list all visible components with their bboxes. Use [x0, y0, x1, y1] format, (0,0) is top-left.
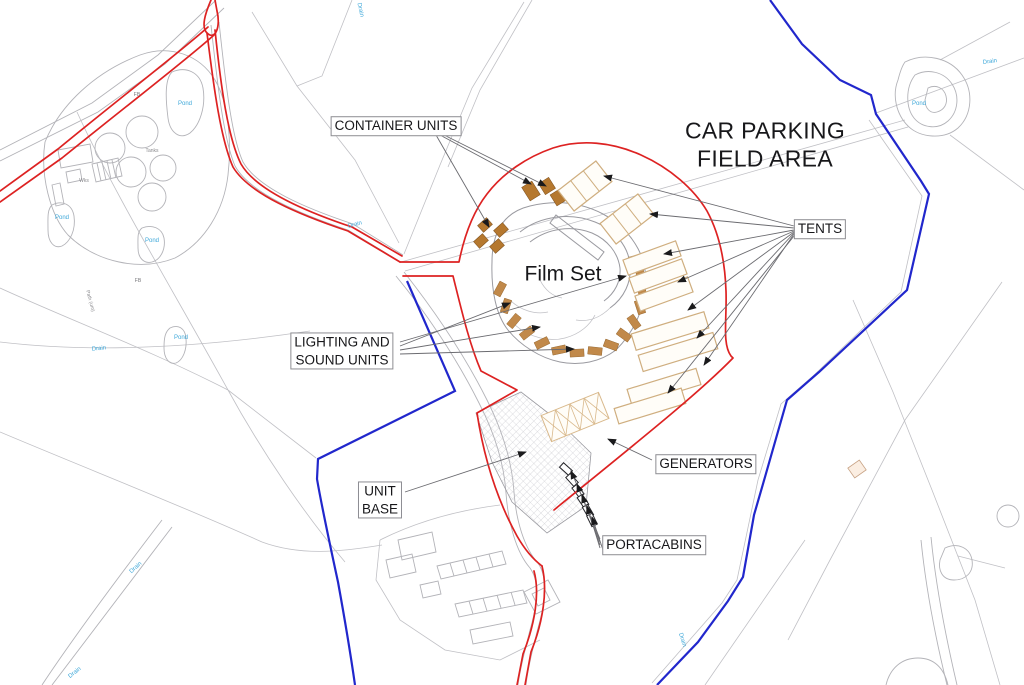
container-units-label: CONTAINER UNITS	[331, 116, 462, 136]
site-plan-canvas: CONTAINER UNITS CAR PARKING FIELD AREA T…	[0, 0, 1024, 685]
container-units-label-text: CONTAINER UNITS	[335, 118, 458, 133]
unit-base-label-line2: BASE	[362, 500, 398, 518]
leader-lines	[400, 135, 794, 553]
portacabins-label: PORTACABINS	[602, 535, 706, 555]
map-text: Pond	[55, 215, 69, 221]
pond-top-right	[895, 57, 970, 136]
map-text: FB	[134, 92, 140, 98]
map-text: Pond	[912, 101, 926, 107]
map-text: Pond	[178, 101, 192, 107]
generators-marker	[541, 392, 609, 441]
film-set-label: Film Set	[521, 260, 604, 287]
map-text: Pond	[174, 335, 188, 341]
car-parking-label: CAR PARKING FIELD AREA	[682, 117, 848, 172]
car-parking-label-line2: FIELD AREA	[685, 145, 845, 173]
lighting-sound-label: LIGHTING AND SOUND UNITS	[290, 332, 393, 369]
generators-leader	[608, 439, 652, 460]
farm-buildings	[376, 505, 560, 660]
unit-base-label: UNIT BASE	[358, 481, 402, 518]
unit-base-label-line1: UNIT	[362, 482, 398, 500]
film-set-label-text: Film Set	[524, 262, 601, 285]
map-text: Wks	[79, 178, 89, 184]
tents-label-text: TENTS	[798, 221, 842, 236]
portacabins-label-text: PORTACABINS	[606, 537, 702, 552]
lighting-sound-label-line2: SOUND UNITS	[294, 351, 389, 369]
map-text: FB	[135, 278, 141, 284]
generators-label: GENERATORS	[655, 454, 756, 474]
base-map	[0, 0, 1024, 685]
map-text: Pond	[145, 238, 159, 244]
car-parking-label-line1: CAR PARKING	[685, 117, 845, 145]
site-plan-drawing	[0, 0, 1024, 685]
red-route	[0, 0, 545, 685]
container-units-markers	[474, 177, 568, 253]
generators-label-text: GENERATORS	[659, 456, 752, 471]
tents-label: TENTS	[794, 219, 846, 239]
tents-markers	[558, 161, 718, 424]
map-text: Tanks	[145, 148, 158, 154]
lighting-sound-label-line1: LIGHTING AND	[294, 333, 389, 351]
container-units-leaders	[436, 135, 546, 227]
